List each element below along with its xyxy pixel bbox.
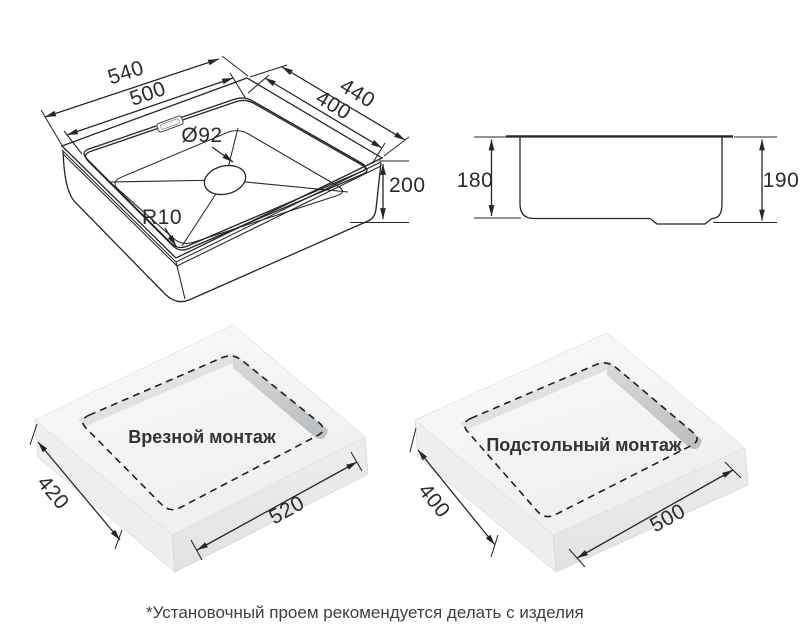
- inset-mount-view: Врезной монтаж 420 520: [30, 325, 368, 572]
- side-view: 180 190: [457, 136, 800, 224]
- dim-180-label: 180: [457, 169, 494, 192]
- dim-190: 190: [713, 137, 799, 223]
- dim-drain: Ø92: [181, 124, 233, 162]
- dim-400-under-label: 400: [414, 479, 455, 522]
- technical-drawing-page: 540 500 440 400 200: [0, 0, 800, 638]
- sink-technical-drawing: 540 500 440 400 200: [0, 0, 800, 638]
- dim-190-label: 190: [763, 169, 800, 192]
- drain-ellipse: [201, 161, 249, 198]
- under-mount-label: Подстольный монтаж: [486, 435, 682, 455]
- dim-200: 200: [350, 161, 426, 223]
- footnote-text: *Установочный проем рекомендуется делать…: [146, 603, 584, 622]
- sink-body-profile: [520, 137, 722, 224]
- dim-200-label: 200: [389, 174, 426, 197]
- sink-body-corner-edge: [176, 262, 185, 299]
- dim-drain-label: Ø92: [181, 124, 222, 147]
- brand-badge: [156, 115, 184, 132]
- isometric-view: 540 500 440 400 200: [41, 56, 426, 302]
- under-mount-view: Подстольный монтаж 400 500: [410, 333, 748, 572]
- dim-radius-label: R10: [142, 206, 182, 229]
- dim-180: 180: [457, 140, 521, 219]
- inset-mount-label: Врезной монтаж: [128, 427, 276, 447]
